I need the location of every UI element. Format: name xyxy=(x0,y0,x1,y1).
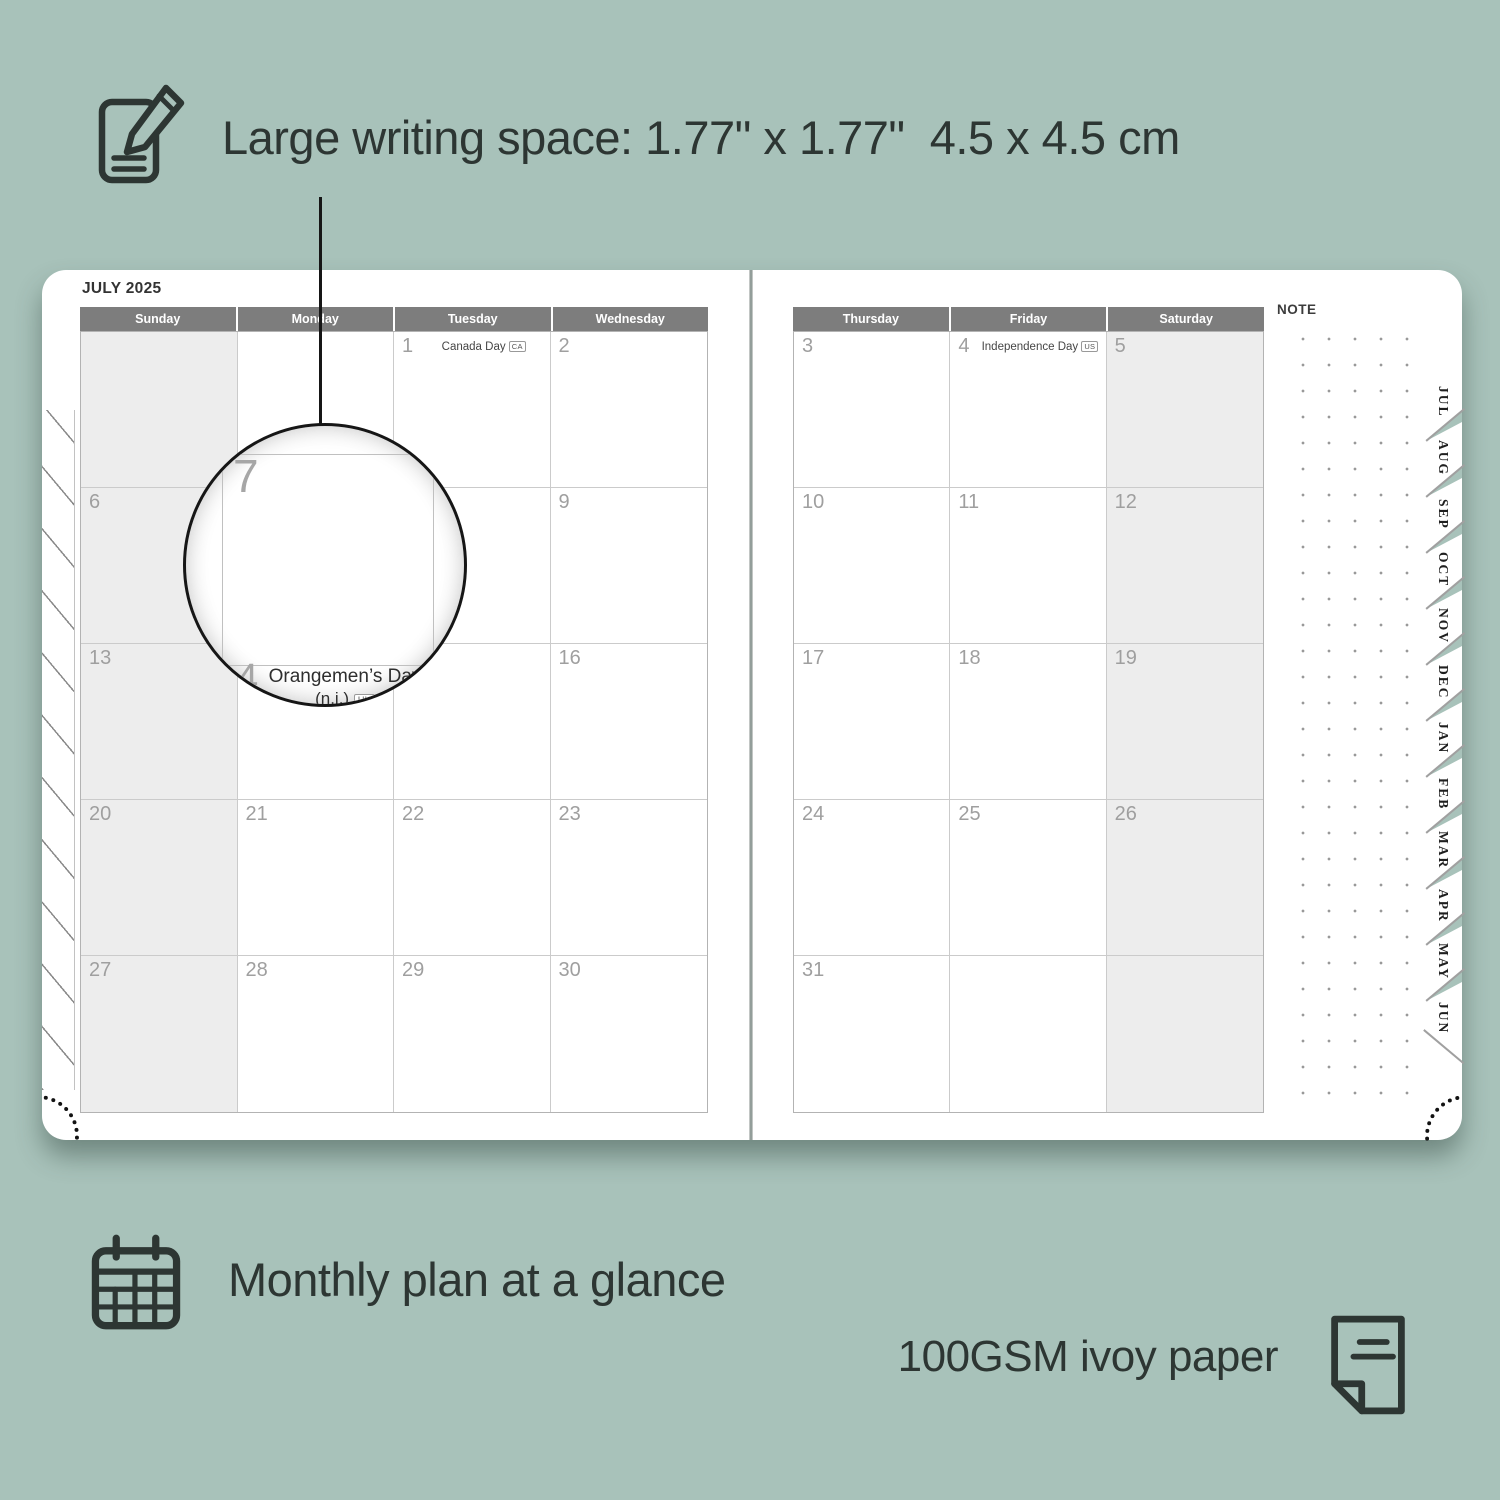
day-header: Tuesday xyxy=(395,307,551,331)
calendar-cell: 10 xyxy=(794,488,950,644)
note-label: NOTE xyxy=(1277,302,1317,317)
magnifier-circle: 7 4 Orangemen’s Day (n.i.) UK xyxy=(183,423,467,707)
note-dot-grid xyxy=(1284,318,1420,1112)
country-badge: US xyxy=(1081,341,1098,352)
day-number: 19 xyxy=(1115,647,1137,670)
day-number: 31 xyxy=(802,959,824,982)
right-page-day-headers: ThursdayFridaySaturday xyxy=(793,307,1264,331)
magnified-holiday-line1: Orangemen’s Day xyxy=(246,666,444,688)
calendar-cell: 29 xyxy=(394,956,551,1112)
calendar-cell: 17 xyxy=(794,644,950,800)
day-number: 1 xyxy=(402,335,413,358)
day-number: 24 xyxy=(802,803,824,826)
calendar-cell: 3 xyxy=(794,332,950,488)
day-number: 27 xyxy=(89,959,111,982)
country-badge: CA xyxy=(509,341,526,352)
day-number: 12 xyxy=(1115,491,1137,514)
left-page-day-headers: SundayMondayTuesdayWednesday xyxy=(80,307,708,331)
calendar-cell: 12 xyxy=(1107,488,1263,644)
day-number: 13 xyxy=(89,647,111,670)
calendar-cell xyxy=(950,956,1106,1112)
calendar-grid-icon xyxy=(84,1232,188,1332)
calendar-cell: 18 xyxy=(950,644,1106,800)
calendar-cell xyxy=(1107,956,1263,1112)
planner-spine xyxy=(749,270,753,1140)
day-number: 4 xyxy=(958,335,969,358)
day-number: 21 xyxy=(246,803,268,826)
day-number: 29 xyxy=(402,959,424,982)
holiday-label: Independence Day US xyxy=(978,340,1101,355)
day-number: 28 xyxy=(246,959,268,982)
day-header: Thursday xyxy=(793,307,949,331)
day-header: Monday xyxy=(238,307,394,331)
calendar-cell: 19 xyxy=(1107,644,1263,800)
calendar-cell: 22 xyxy=(394,800,551,956)
holiday-label: Canada Day CA xyxy=(422,340,546,355)
day-number: 16 xyxy=(559,647,581,670)
day-number: 18 xyxy=(958,647,980,670)
day-number: 17 xyxy=(802,647,824,670)
day-number: 3 xyxy=(802,335,813,358)
calendar-cell xyxy=(81,332,238,488)
calendar-cell: 31 xyxy=(794,956,950,1112)
notepad-pencil-icon xyxy=(92,80,192,188)
dotted-corner-arc-right xyxy=(1412,1095,1462,1141)
calendar-cell: 23 xyxy=(551,800,708,956)
pointer-line xyxy=(319,197,322,427)
day-number: 10 xyxy=(802,491,824,514)
calendar-cell: 27 xyxy=(81,956,238,1112)
calendar-cell: 30 xyxy=(551,956,708,1112)
day-number: 2 xyxy=(559,335,570,358)
calendar-cell: 26 xyxy=(1107,800,1263,956)
day-number: 20 xyxy=(89,803,111,826)
calendar-cell: 16 xyxy=(551,644,708,800)
left-page-edge-hatching xyxy=(42,410,75,1090)
calendar-cell: 2 xyxy=(551,332,708,488)
day-number: 30 xyxy=(559,959,581,982)
calendar-cell: 9 xyxy=(551,488,708,644)
calendar-cell: 13 xyxy=(81,644,238,800)
day-header: Sunday xyxy=(80,307,236,331)
planner-spread: JULY 2025 SundayMondayTuesdayWednesday 1… xyxy=(42,270,1462,1140)
day-header: Saturday xyxy=(1108,307,1264,331)
day-header: Friday xyxy=(951,307,1107,331)
day-number: 11 xyxy=(958,491,979,514)
day-number: 5 xyxy=(1115,335,1126,358)
calendar-cell: 25 xyxy=(950,800,1106,956)
day-number: 23 xyxy=(559,803,581,826)
calendar-cell: 20 xyxy=(81,800,238,956)
product-image: Large writing space: 1.77" x 1.77" 4.5 x… xyxy=(0,0,1500,1500)
day-number: 22 xyxy=(402,803,424,826)
month-title: JULY 2025 xyxy=(82,280,161,298)
writing-space-caption: Large writing space: 1.77" x 1.77" 4.5 x… xyxy=(222,110,1180,165)
calendar-cell: 28 xyxy=(238,956,395,1112)
right-page-calendar-grid: 34Independence Day US5101112171819242526… xyxy=(793,331,1264,1113)
day-number: 6 xyxy=(89,491,100,514)
day-header: Wednesday xyxy=(553,307,709,331)
day-number: 25 xyxy=(958,803,980,826)
calendar-cell: 24 xyxy=(794,800,950,956)
calendar-cell: 5 xyxy=(1107,332,1263,488)
monthly-plan-caption: Monthly plan at a glance xyxy=(228,1252,726,1307)
day-number: 9 xyxy=(559,491,570,514)
calendar-cell: 4Independence Day US xyxy=(950,332,1106,488)
calendar-cell: 21 xyxy=(238,800,395,956)
day-number: 26 xyxy=(1115,803,1137,826)
paper-sheet-icon xyxy=(1320,1310,1416,1420)
magnified-day-number: 7 xyxy=(233,449,259,503)
magnified-day-cell: 7 xyxy=(222,454,434,666)
paper-caption: 100GSM ivoy paper xyxy=(898,1332,1278,1382)
calendar-cell: 11 xyxy=(950,488,1106,644)
dotted-corner-arc-left xyxy=(42,1095,92,1141)
